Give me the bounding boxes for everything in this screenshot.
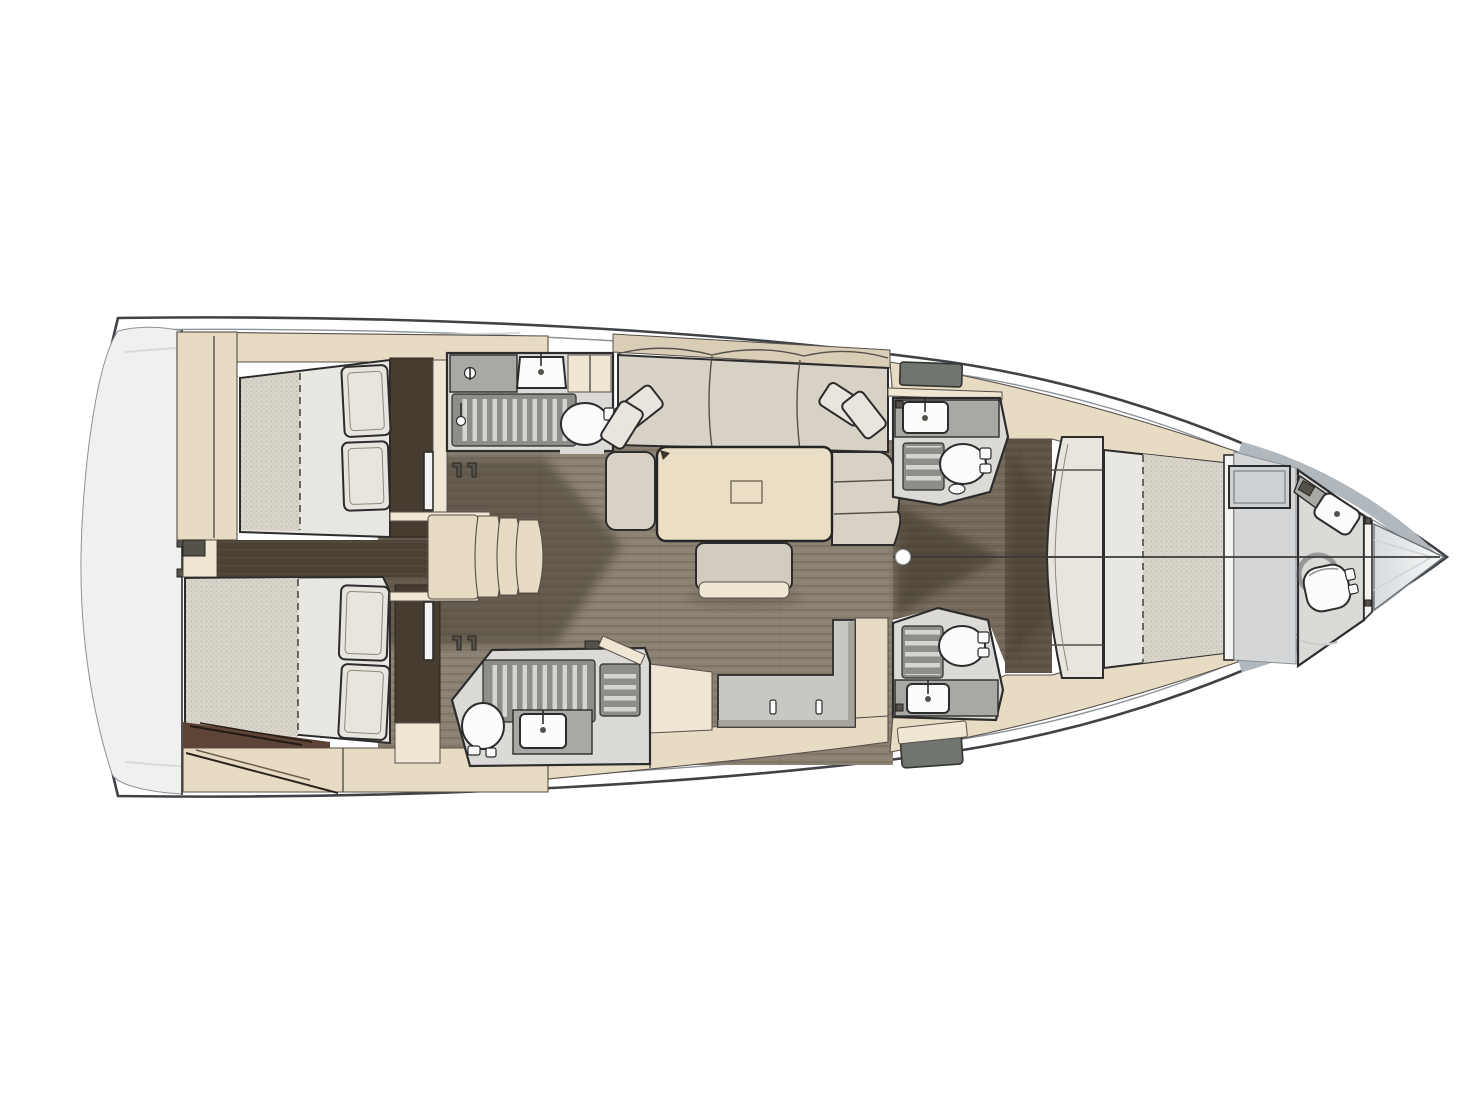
vanity-counter bbox=[450, 355, 517, 392]
deck-hatch bbox=[900, 362, 963, 387]
door-opening bbox=[560, 448, 604, 454]
sofa-chaise bbox=[606, 452, 655, 530]
shower-grate-icon bbox=[600, 664, 640, 716]
door-latch bbox=[585, 641, 599, 649]
shower-grate-icon bbox=[903, 443, 944, 490]
double-berth-port-aft bbox=[240, 360, 391, 537]
seat-locker bbox=[1229, 466, 1290, 508]
sink-icon bbox=[896, 398, 948, 433]
drawer-handle bbox=[770, 700, 776, 714]
door-frame bbox=[424, 602, 433, 660]
mast-post bbox=[896, 550, 911, 565]
shower-grate-icon bbox=[452, 394, 576, 446]
sofa-return bbox=[832, 452, 900, 545]
head-aft-port bbox=[447, 353, 614, 454]
door-frame bbox=[424, 452, 433, 510]
drawer-handle bbox=[816, 700, 822, 714]
aft-cabins-divider bbox=[183, 540, 433, 577]
shower-mixer bbox=[457, 417, 466, 426]
companionway-stairs bbox=[428, 515, 543, 599]
double-berth-starboard-aft bbox=[185, 577, 390, 743]
saloon-table bbox=[657, 447, 832, 541]
sink-icon bbox=[895, 680, 998, 716]
yacht-layout-plan bbox=[0, 0, 1478, 1109]
wardrobe bbox=[177, 332, 237, 540]
ottoman bbox=[696, 543, 792, 598]
shower-grate-icon bbox=[902, 626, 943, 678]
sink-icon bbox=[513, 710, 592, 754]
sink-icon bbox=[517, 353, 566, 388]
island-double-berth bbox=[1104, 450, 1224, 668]
floor-plan-canvas bbox=[0, 0, 1478, 1109]
